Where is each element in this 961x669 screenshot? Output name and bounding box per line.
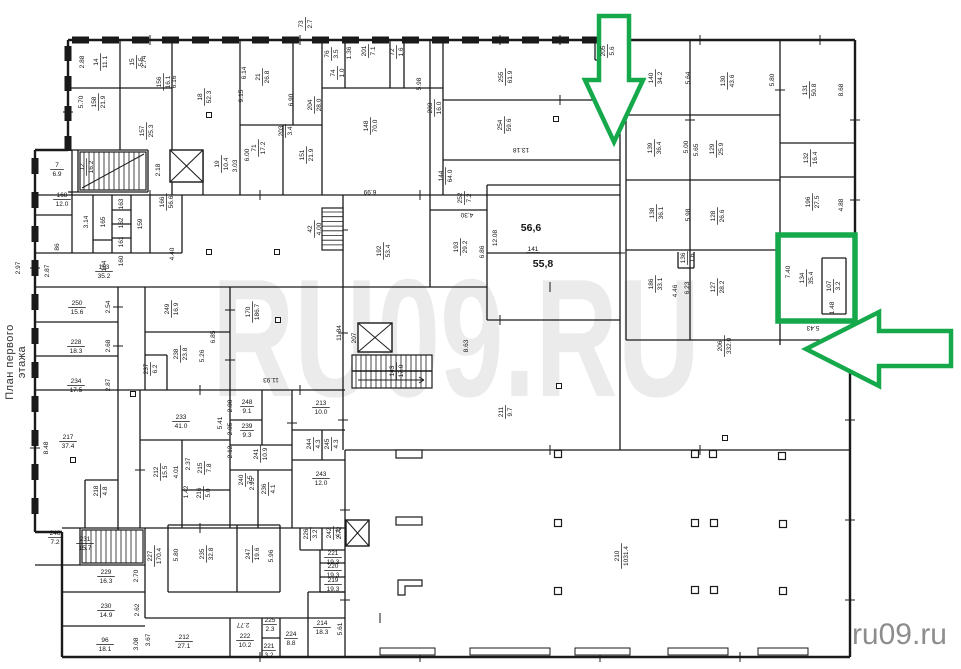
room-label: 16656.6 <box>159 193 175 211</box>
svg-text:254: 254 <box>497 119 504 130</box>
svg-text:217: 217 <box>63 434 74 441</box>
svg-text:332.0: 332.0 <box>726 337 733 354</box>
svg-text:151: 151 <box>299 149 306 160</box>
dimension-label: 6.90 <box>288 93 295 106</box>
dimension-label: 6.23 <box>684 281 691 294</box>
svg-text:1.0: 1.0 <box>339 68 346 77</box>
room-label: 732.7 <box>298 17 314 31</box>
room-label: 162 <box>118 217 125 228</box>
svg-text:160: 160 <box>118 255 125 266</box>
room-label: 227170.4 <box>147 545 163 567</box>
svg-text:212: 212 <box>153 466 160 477</box>
svg-text:203: 203 <box>278 125 285 136</box>
svg-text:140: 140 <box>648 72 655 83</box>
svg-text:131: 131 <box>802 84 809 95</box>
svg-text:18.1: 18.1 <box>99 646 112 653</box>
svg-text:21: 21 <box>255 73 262 81</box>
room-label: 2376.2 <box>143 362 159 376</box>
dimension-label: 2.97 <box>15 261 22 274</box>
svg-text:129: 129 <box>709 143 716 154</box>
dimension-label: 4.01 <box>173 465 180 478</box>
svg-text:203: 203 <box>427 102 434 113</box>
svg-text:244: 244 <box>306 438 313 449</box>
room-label: 2527.2 <box>457 191 473 205</box>
svg-text:248: 248 <box>242 399 253 406</box>
svg-text:16.3: 16.3 <box>100 578 113 585</box>
svg-text:240: 240 <box>238 474 245 485</box>
svg-text:12.0: 12.0 <box>56 201 69 208</box>
svg-text:35.4: 35.4 <box>808 271 815 284</box>
dimension-label: 13.18 <box>512 146 529 153</box>
svg-text:16.0: 16.0 <box>436 101 443 114</box>
svg-text:211: 211 <box>498 406 505 417</box>
svg-text:16.4: 16.4 <box>812 151 819 164</box>
dimension-label: 6.14 <box>241 66 248 79</box>
svg-text:2.7: 2.7 <box>307 19 314 28</box>
room-label: 22818.3 <box>67 339 85 355</box>
room-label: 2364.1 <box>261 482 277 496</box>
svg-text:10.2: 10.2 <box>239 642 252 649</box>
room-label: 19627.5 <box>805 193 821 211</box>
svg-text:2.3: 2.3 <box>265 626 274 633</box>
svg-text:107: 107 <box>826 280 833 291</box>
svg-text:225: 225 <box>265 617 276 624</box>
svg-text:15.5: 15.5 <box>162 465 169 478</box>
dimension-label: 5.80 <box>173 548 180 561</box>
room-label: 21215.5 <box>153 463 169 481</box>
svg-text:236: 236 <box>261 483 268 494</box>
dimension-label: 1.48 <box>829 301 836 314</box>
dimension-label: 5.41 <box>217 416 224 429</box>
dimension-label: 2.88 <box>79 55 86 68</box>
svg-text:3.4: 3.4 <box>287 126 294 135</box>
svg-text:96: 96 <box>101 637 109 644</box>
svg-text:9.7: 9.7 <box>507 407 514 416</box>
dimension-label: 1.42 <box>183 485 190 498</box>
svg-text:43.6: 43.6 <box>729 74 736 87</box>
room-label: 14034.2 <box>648 69 664 87</box>
dimension-label: 2.87 <box>105 378 112 391</box>
room-label: 24312.0 <box>312 471 330 487</box>
room-label: 2454.3 <box>324 437 340 451</box>
dimension-label: 4.30 <box>460 211 473 218</box>
svg-text:10.4: 10.4 <box>223 157 230 170</box>
room-label: 25561.9 <box>498 68 514 86</box>
svg-text:168: 168 <box>57 192 68 199</box>
room-label: 2252.3 <box>263 617 277 633</box>
svg-text:221: 221 <box>264 643 275 650</box>
dimension-label: 2.95 <box>249 477 256 490</box>
svg-text:72: 72 <box>389 48 396 56</box>
room-label: 141 <box>526 246 540 253</box>
svg-text:235: 235 <box>199 548 206 559</box>
svg-text:238: 238 <box>173 348 180 359</box>
svg-text:221: 221 <box>328 550 339 557</box>
dimension-label: 6.16 <box>171 75 178 88</box>
svg-text:241: 241 <box>253 448 260 459</box>
room-label: 1852.3 <box>197 88 213 106</box>
room-label: 23823.8 <box>173 345 189 363</box>
room-label: 206332.0 <box>717 335 733 357</box>
svg-text:226: 226 <box>303 528 310 539</box>
room-label: 741.0 <box>330 66 346 80</box>
room-label: 12925.9 <box>709 140 725 158</box>
dimension-label: 5.80 <box>769 73 776 86</box>
watermark-text: RU09.RU <box>212 244 700 432</box>
room-label: 22210.2 <box>236 633 254 649</box>
svg-text:3.2: 3.2 <box>312 529 319 538</box>
svg-text:33.1: 33.1 <box>657 277 664 290</box>
dimension-label: 2.37 <box>185 457 192 470</box>
svg-text:138: 138 <box>649 207 656 218</box>
svg-text:17.0: 17.0 <box>398 364 405 377</box>
dimension-label: 3.14 <box>83 215 90 228</box>
floor-plan-drawing: RU09.RU 1411.1155.515821.915616.115725.3… <box>0 0 961 669</box>
room-label: 23417.5 <box>67 378 85 394</box>
svg-text:156: 156 <box>156 76 163 87</box>
svg-text:237: 237 <box>143 363 150 374</box>
dimension-label: 5.65 <box>693 143 700 156</box>
room-label: 21227.1 <box>175 634 193 650</box>
svg-text:5.6: 5.6 <box>609 46 616 55</box>
svg-text:71: 71 <box>251 144 258 152</box>
svg-text:74: 74 <box>330 69 337 77</box>
svg-text:7: 7 <box>55 162 59 169</box>
room-label: 163 <box>118 198 125 209</box>
dimension-label: 2.68 <box>105 339 112 352</box>
svg-text:239: 239 <box>242 423 253 430</box>
dimension-label: 1.36 <box>346 46 353 59</box>
dimension-label: 6.00 <box>244 148 251 161</box>
svg-text:10.0: 10.0 <box>315 409 328 416</box>
dimension-label: 8.48 <box>43 441 50 454</box>
dimension-label: 9.15 <box>238 89 245 102</box>
room-label: 7117.2 <box>251 139 267 157</box>
room-label: 2157.8 <box>197 461 213 475</box>
svg-text:4.00: 4.00 <box>316 222 323 235</box>
svg-text:19.6: 19.6 <box>254 547 261 560</box>
svg-text:245: 245 <box>324 438 331 449</box>
svg-text:193: 193 <box>453 241 460 252</box>
svg-text:7.8: 7.8 <box>206 463 213 472</box>
svg-text:53.4: 53.4 <box>385 244 392 257</box>
room-label: 86 <box>54 243 61 251</box>
room-label: 23532.8 <box>199 545 215 563</box>
room-label: 424.00 <box>307 220 323 238</box>
svg-text:192: 192 <box>376 245 383 256</box>
room-label: 24110.9 <box>253 445 269 463</box>
dimension-label: 6.86 <box>479 245 486 258</box>
dimension-label: 7.40 <box>785 265 792 278</box>
svg-text:214: 214 <box>317 620 328 627</box>
svg-text:219: 219 <box>328 577 339 584</box>
room-label: 25015.6 <box>68 300 86 316</box>
svg-text:213: 213 <box>316 400 327 407</box>
area-label-bold: 55,8 <box>533 258 554 270</box>
svg-text:5.0: 5.0 <box>205 488 212 497</box>
room-label: 24719.6 <box>245 545 261 563</box>
svg-text:243: 243 <box>316 471 327 478</box>
svg-text:166: 166 <box>159 196 166 207</box>
svg-text:136: 136 <box>680 252 687 263</box>
svg-text:52.3: 52.3 <box>206 90 213 103</box>
svg-text:42: 42 <box>307 225 314 233</box>
room-label: 161 <box>118 236 125 247</box>
svg-text:231: 231 <box>80 536 91 543</box>
svg-text:14: 14 <box>93 58 100 66</box>
room-label: 22916.3 <box>97 569 115 585</box>
svg-text:196: 196 <box>805 196 812 207</box>
svg-text:186: 186 <box>648 278 655 289</box>
svg-text:141: 141 <box>528 246 539 253</box>
svg-text:3.2: 3.2 <box>264 652 273 659</box>
dimension-label: 6.85 <box>210 330 217 343</box>
dimension-label: 2.12 <box>227 445 234 458</box>
svg-text:50.8: 50.8 <box>811 83 818 96</box>
room-label: 13043.6 <box>720 72 736 90</box>
svg-text:29.2: 29.2 <box>462 240 469 253</box>
dimension-label: 2.00 <box>227 399 234 412</box>
svg-text:127: 127 <box>710 281 717 292</box>
dimension-label: 3.67 <box>145 633 152 646</box>
svg-text:255: 255 <box>498 71 505 82</box>
dimension-label: 4.40 <box>169 247 176 260</box>
svg-text:170.4: 170.4 <box>156 547 163 564</box>
svg-text:21.9: 21.9 <box>100 95 107 108</box>
svg-text:16.2: 16.2 <box>88 160 95 173</box>
svg-text:207: 207 <box>351 332 358 343</box>
room-label: 13936.4 <box>647 139 663 157</box>
svg-text:16.9: 16.9 <box>173 302 180 315</box>
svg-text:6.2: 6.2 <box>152 364 159 373</box>
svg-text:227: 227 <box>147 550 154 561</box>
dimension-label: 11.84 <box>336 325 343 341</box>
room-label: 9618.1 <box>96 637 114 653</box>
svg-text:148: 148 <box>363 120 370 131</box>
dimension-label: 5.98 <box>416 77 423 90</box>
dimension-label: 3.08 <box>133 637 140 650</box>
svg-text:8.8: 8.8 <box>286 640 295 647</box>
room-label: 21919.3 <box>324 577 342 593</box>
svg-text:7.2: 7.2 <box>50 539 59 546</box>
svg-text:250: 250 <box>72 300 83 307</box>
dimension-label: 8.63 <box>463 339 470 352</box>
room-label: 721.6 <box>389 45 405 59</box>
room-label: 76.9 <box>50 162 64 178</box>
svg-text:242: 242 <box>326 527 333 538</box>
svg-text:159: 159 <box>137 218 144 229</box>
svg-text:222: 222 <box>240 633 251 640</box>
room-label: 12728.2 <box>710 278 726 296</box>
svg-text:17.5: 17.5 <box>70 387 83 394</box>
svg-text:7.1: 7.1 <box>370 46 377 55</box>
room-label: 1411.1 <box>93 53 109 71</box>
dimension-label: 5.98 <box>685 208 692 221</box>
svg-text:216: 216 <box>196 487 203 498</box>
room-label: 207 <box>351 332 358 343</box>
svg-text:212: 212 <box>179 634 190 641</box>
svg-text:25.3: 25.3 <box>148 124 155 137</box>
dimension-label: 8.68 <box>838 83 845 96</box>
svg-text:76: 76 <box>324 50 331 58</box>
svg-text:1031.4: 1031.4 <box>623 546 630 566</box>
dimension-label: 5.00 <box>683 140 690 153</box>
svg-text:224: 224 <box>286 631 297 638</box>
svg-text:234: 234 <box>71 378 82 385</box>
svg-text:34.2: 34.2 <box>657 71 664 84</box>
room-label: 14870.0 <box>363 117 379 135</box>
svg-text:134: 134 <box>799 272 806 283</box>
dimension-label: 5.43 <box>806 324 819 331</box>
dimension-label: 5.26 <box>199 349 206 362</box>
svg-text:157: 157 <box>139 125 146 136</box>
dimension-label: 2.70 <box>133 569 140 582</box>
svg-text:229: 229 <box>101 569 112 576</box>
dimension-label: 5.64 <box>685 71 692 84</box>
svg-text:73: 73 <box>298 20 305 28</box>
dimension-label: 2.54 <box>105 300 112 313</box>
room-label: 165 <box>100 216 107 227</box>
room-label: 15725.3 <box>139 122 155 140</box>
dimension-label: 2.62 <box>134 603 141 616</box>
room-label: 2248.8 <box>284 631 298 647</box>
svg-text:1.6: 1.6 <box>398 47 405 56</box>
svg-text:19.3: 19.3 <box>327 586 340 593</box>
room-label: 13150.8 <box>802 81 818 99</box>
room-label: 23341.0 <box>172 414 190 430</box>
room-label: 2184.8 <box>93 484 109 498</box>
area-label-bold: 56,6 <box>521 222 542 234</box>
svg-text:9.3: 9.3 <box>242 432 251 439</box>
svg-text:37.4: 37.4 <box>62 443 75 450</box>
svg-text:18: 18 <box>197 93 204 101</box>
dimension-label: 4.46 <box>672 284 679 297</box>
room-label: 2263.2 <box>303 527 319 541</box>
room-label: 763.5 <box>324 47 340 61</box>
svg-text:3.2: 3.2 <box>835 281 842 290</box>
room-label: 13216.4 <box>803 149 819 167</box>
dimension-label: 2.72 <box>336 526 343 539</box>
svg-text:18.3: 18.3 <box>70 348 83 355</box>
room-label: 160 <box>118 255 125 266</box>
room-label: 14464.0 <box>438 167 454 185</box>
svg-text:12: 12 <box>79 163 86 171</box>
svg-text:205: 205 <box>600 45 607 56</box>
svg-text:23.8: 23.8 <box>182 347 189 360</box>
room-label: 25459.6 <box>497 116 513 134</box>
dimension-label: 4.88 <box>838 198 845 211</box>
dimension-label: 5.96 <box>268 549 275 562</box>
dimension-label: 5.61 <box>337 622 344 635</box>
room-label: 21737.4 <box>59 434 77 450</box>
dimension-label: 2.18 <box>155 163 162 176</box>
svg-text:36.4: 36.4 <box>656 141 663 154</box>
svg-text:61.9: 61.9 <box>507 70 514 83</box>
svg-text:86: 86 <box>54 243 61 251</box>
svg-text:4.8: 4.8 <box>102 486 109 495</box>
svg-text:28.0: 28.0 <box>316 98 323 111</box>
svg-text:28.2: 28.2 <box>719 280 726 293</box>
svg-text:26.8: 26.8 <box>264 70 271 83</box>
room-label: 2165.0 <box>196 486 212 500</box>
room-label: 20428.0 <box>307 96 323 114</box>
room-label: 21418.3 <box>313 620 331 636</box>
svg-text:165: 165 <box>100 216 107 227</box>
svg-text:27.1: 27.1 <box>178 643 191 650</box>
svg-text:9.1: 9.1 <box>242 408 251 415</box>
svg-text:26.6: 26.6 <box>719 209 726 222</box>
svg-text:4.3: 4.3 <box>315 439 322 448</box>
room-label: 24916.9 <box>164 300 180 318</box>
svg-text:56.6: 56.6 <box>168 195 175 208</box>
room-label: 1910.4 <box>214 155 230 173</box>
svg-text:158: 158 <box>91 96 98 107</box>
room-label: 159 <box>137 218 144 229</box>
svg-text:3.5: 3.5 <box>333 49 340 58</box>
svg-text:215: 215 <box>197 462 204 473</box>
dimension-label: 3.03 <box>232 159 239 172</box>
svg-text:153: 153 <box>99 264 110 271</box>
room-label: 15821.9 <box>91 93 107 111</box>
svg-text:139: 139 <box>647 142 654 153</box>
svg-text:10.9: 10.9 <box>262 447 269 460</box>
room-label: 13435.4 <box>799 269 815 287</box>
svg-text:186.7: 186.7 <box>254 303 261 320</box>
svg-text:15: 15 <box>129 58 136 66</box>
svg-text:163: 163 <box>118 198 125 209</box>
svg-text:41.0: 41.0 <box>175 423 188 430</box>
svg-text:21.9: 21.9 <box>308 148 315 161</box>
room-label: 2017.1 <box>361 44 377 58</box>
dimension-label: 11.93 <box>263 376 279 383</box>
room-label: 13836.1 <box>649 204 665 222</box>
svg-text:230: 230 <box>101 603 112 610</box>
svg-text:70.0: 70.0 <box>372 119 379 132</box>
svg-text:64.0: 64.0 <box>447 169 454 182</box>
room-label: 2101031.4 <box>614 543 630 568</box>
svg-text:206: 206 <box>717 340 724 351</box>
svg-text:7.2: 7.2 <box>466 193 473 202</box>
svg-text:6.9: 6.9 <box>52 171 61 178</box>
svg-text:36.1: 36.1 <box>658 206 665 219</box>
dimension-label: 2.77 <box>236 621 249 628</box>
svg-text:4.3: 4.3 <box>333 439 340 448</box>
svg-text:228: 228 <box>71 339 82 346</box>
svg-text:210: 210 <box>614 550 621 561</box>
svg-text:11.1: 11.1 <box>102 56 109 69</box>
svg-text:12.0: 12.0 <box>315 480 328 487</box>
svg-text:218: 218 <box>93 485 100 496</box>
svg-text:14.9: 14.9 <box>100 612 113 619</box>
room-label: 2467.2 <box>48 530 62 546</box>
svg-text:220: 220 <box>328 563 339 570</box>
svg-text:201: 201 <box>361 45 368 56</box>
dimension-label: 5.70 <box>78 95 85 108</box>
svg-text:17.2: 17.2 <box>260 141 267 154</box>
svg-text:130: 130 <box>720 75 727 86</box>
svg-text:143: 143 <box>389 365 396 376</box>
svg-text:25.9: 25.9 <box>718 142 725 155</box>
svg-text:249: 249 <box>164 303 171 314</box>
svg-text:170: 170 <box>245 306 252 317</box>
dimension-label: 2.74 <box>141 55 148 68</box>
highlight-arrow-down <box>585 16 643 142</box>
dimension-label: 2.87 <box>44 264 51 277</box>
svg-text:15.7: 15.7 <box>79 545 92 552</box>
site-brand: ru09.ru <box>852 618 947 652</box>
room-label: 12826.6 <box>710 207 726 225</box>
room-label: 2126.8 <box>255 68 271 86</box>
